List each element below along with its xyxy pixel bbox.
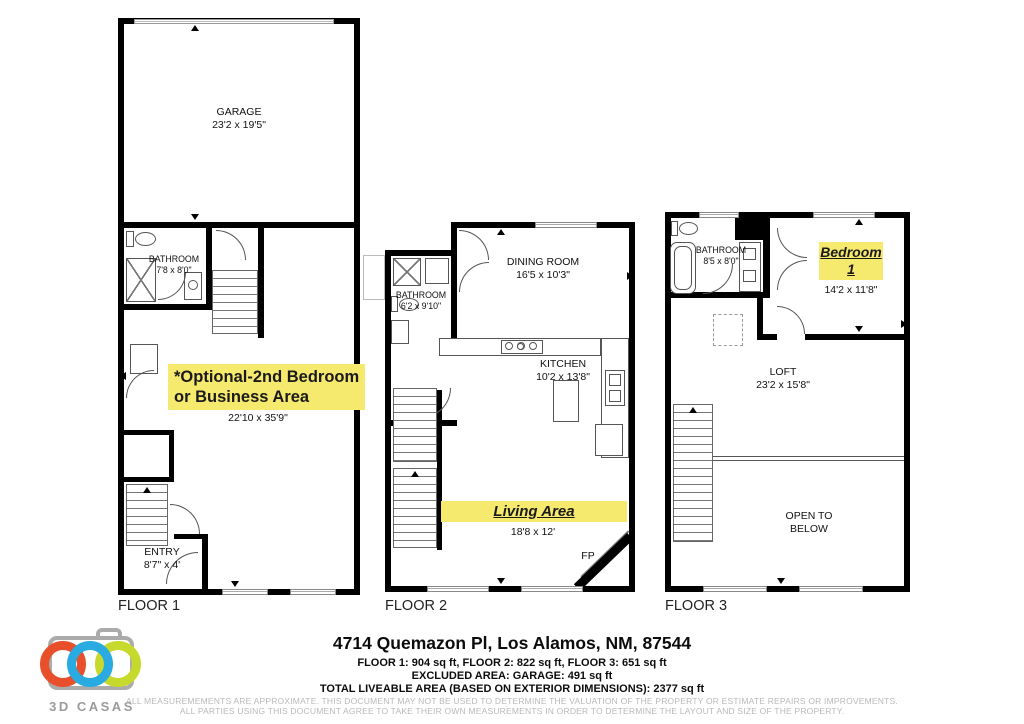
room-name: BATHROOM xyxy=(149,254,199,265)
measure-arrow-icon xyxy=(627,272,633,280)
wall xyxy=(437,390,442,550)
measure-arrow-icon xyxy=(777,578,785,584)
flex-room-line2: or Business Area xyxy=(174,387,359,407)
bathroom-label: BATHROOM 8'5 x 8'0" xyxy=(696,245,746,267)
flex-room-line1: *Optional-2nd Bedroom xyxy=(174,367,359,387)
window xyxy=(521,586,583,592)
sink-basin xyxy=(609,374,621,386)
measure-arrow-icon xyxy=(855,326,863,332)
floor1-plan: GARAGE 23'2 x 19'5" BATHROOM 7'8 x 8'0" … xyxy=(118,18,360,595)
sink-bowl xyxy=(188,280,198,290)
wall xyxy=(258,222,264,338)
loft-railing xyxy=(713,456,904,461)
burner-icon xyxy=(529,342,537,350)
measure-arrow-icon xyxy=(191,25,199,31)
wall xyxy=(118,477,174,482)
shower-icon xyxy=(393,258,421,286)
chimney-block xyxy=(735,218,763,240)
kitchen-island xyxy=(553,380,579,422)
room-name: KITCHEN xyxy=(536,358,590,371)
bathtub-inner xyxy=(674,246,692,290)
wall xyxy=(202,534,208,595)
toilet-tank xyxy=(671,221,678,236)
closet-door-arc xyxy=(777,228,807,258)
floor2-caption: FLOOR 2 xyxy=(385,598,447,614)
room-dims: 8'5 x 8'0" xyxy=(696,256,746,267)
flex-room-label: *Optional-2nd Bedroom or Business Area xyxy=(168,364,365,410)
door-arc xyxy=(170,504,200,534)
staircase xyxy=(393,388,437,462)
refrigerator-icon xyxy=(595,424,623,456)
door-arc xyxy=(459,262,489,292)
floor2-plan: DINING ROOM 16'5 x 10'3" BATHROOM 6'2 x … xyxy=(385,222,635,592)
staircase xyxy=(673,404,713,542)
excluded-area-line: EXCLUDED AREA: GARAGE: 491 sq ft xyxy=(0,670,1024,682)
measure-arrow-icon xyxy=(191,214,199,220)
room-dims: 6'2 x 9'10" xyxy=(396,301,446,312)
attic-access-box xyxy=(713,314,743,346)
garage-door xyxy=(134,19,334,24)
burner-icon xyxy=(505,342,513,350)
wall xyxy=(354,18,360,595)
bedroom1-dims: 14'2 x 11'8" xyxy=(824,284,877,297)
dining-room-label: DINING ROOM 16'5 x 10'3" xyxy=(507,256,579,282)
staircase xyxy=(212,270,258,334)
window xyxy=(222,589,268,595)
garage-label: GARAGE 23'2 x 19'5" xyxy=(212,106,266,132)
wall xyxy=(385,586,635,592)
disclaimer-line-2: ALL PARTIES USING THIS DOCUMENT AGREE TO… xyxy=(0,706,1024,716)
room-name: DINING ROOM xyxy=(507,256,579,269)
disclaimer-line-1: ALL MEASUREMEMENTS ARE APPROXIMATE. THIS… xyxy=(0,696,1024,706)
bathroom-label: BATHROOM 7'8 x 8'0" xyxy=(149,254,199,276)
sink-basin xyxy=(743,270,756,282)
wall xyxy=(763,334,777,340)
measure-arrow-icon xyxy=(231,581,239,587)
window xyxy=(290,589,336,595)
wall xyxy=(763,218,770,298)
measure-arrow-icon xyxy=(497,229,505,235)
wall xyxy=(805,334,910,340)
exterior-ledge xyxy=(363,255,385,300)
door-arc xyxy=(158,272,186,300)
staircase xyxy=(393,468,437,548)
loft-label: LOFT 23'2 x 15'8" xyxy=(756,366,810,392)
toilet-icon xyxy=(679,222,698,235)
stair-direction-arrow-icon xyxy=(411,471,419,477)
wall xyxy=(118,430,174,435)
bedroom1-label: Bedroom 1 xyxy=(819,242,883,280)
wall xyxy=(174,534,208,539)
wall xyxy=(665,586,910,592)
wall xyxy=(385,426,391,592)
room-dims: 16'5 x 10'3" xyxy=(507,269,579,282)
room-dims: 10'2 x 13'8" xyxy=(536,371,590,384)
sink-vanity xyxy=(391,320,409,344)
wall xyxy=(118,222,360,228)
open-to-below-label: OPEN TO BELOW xyxy=(773,510,845,536)
closet-box xyxy=(425,258,449,284)
room-name: LOFT xyxy=(756,366,810,379)
toilet-icon xyxy=(135,232,156,246)
wall xyxy=(904,212,910,592)
wall xyxy=(385,250,457,256)
door-arc xyxy=(459,230,489,260)
entry-label: ENTRY 8'7" x 4' xyxy=(144,546,180,572)
room-name: BATHROOM xyxy=(696,245,746,256)
sink-basin xyxy=(609,390,621,402)
bedroom1-line1: Bedroom xyxy=(819,244,883,261)
window xyxy=(535,222,597,228)
flex-room-dims: 22'10 x 35'9" xyxy=(228,412,288,425)
room-name: ENTRY xyxy=(144,546,180,559)
stair-direction-arrow-icon xyxy=(143,487,151,493)
staircase xyxy=(126,484,168,546)
kitchen-label: KITCHEN 10'2 x 13'8" xyxy=(536,358,590,384)
floor1-caption: FLOOR 1 xyxy=(118,598,180,614)
room-dims: 23'2 x 15'8" xyxy=(756,379,810,392)
wall xyxy=(118,304,212,310)
measure-arrow-icon xyxy=(855,219,863,225)
room-name: GARAGE xyxy=(212,106,266,119)
door-arc xyxy=(777,306,805,334)
living-area-label: Living Area xyxy=(441,501,627,522)
floor3-caption: FLOOR 3 xyxy=(665,598,727,614)
floor-plan-sheet: GARAGE 23'2 x 19'5" BATHROOM 7'8 x 8'0" … xyxy=(0,0,1024,724)
door-arc xyxy=(703,264,733,294)
living-area-dims: 18'8 x 12' xyxy=(511,526,555,539)
door-arc xyxy=(126,370,154,398)
floor3-plan: BATHROOM 8'5 x 8'0" Bedroom 1 14'2 x 11'… xyxy=(665,212,910,592)
fireplace-label: FP xyxy=(581,550,594,563)
window xyxy=(699,212,739,218)
wall xyxy=(451,252,457,352)
stair-direction-arrow-icon xyxy=(689,407,697,413)
room-name: BATHROOM xyxy=(396,290,446,301)
room-dims: 23'2 x 19'5" xyxy=(212,119,266,132)
burner-icon xyxy=(517,343,524,350)
room-dims: 7'8 x 8'0" xyxy=(149,265,199,276)
window xyxy=(799,586,863,592)
window xyxy=(703,586,767,592)
total-area-line: TOTAL LIVEABLE AREA (BASED ON EXTERIOR D… xyxy=(0,683,1024,695)
window xyxy=(813,212,875,218)
bedroom1-line2: 1 xyxy=(819,261,883,278)
bathroom-label: BATHROOM 6'2 x 9'10" xyxy=(396,290,446,312)
wall xyxy=(169,430,174,482)
measure-arrow-icon xyxy=(497,578,505,584)
room-dims: 8'7" x 4' xyxy=(144,559,180,572)
window xyxy=(427,586,489,592)
measure-arrow-icon xyxy=(120,372,126,380)
floor-areas-line: FLOOR 1: 904 sq ft, FLOOR 2: 822 sq ft, … xyxy=(0,657,1024,669)
toilet-tank xyxy=(126,231,134,247)
measure-arrow-icon xyxy=(901,320,907,328)
property-address: 4714 Quemazon Pl, Los Alamos, NM, 87544 xyxy=(0,633,1024,654)
door-arc xyxy=(216,230,246,260)
closet-door-arc xyxy=(777,260,807,290)
